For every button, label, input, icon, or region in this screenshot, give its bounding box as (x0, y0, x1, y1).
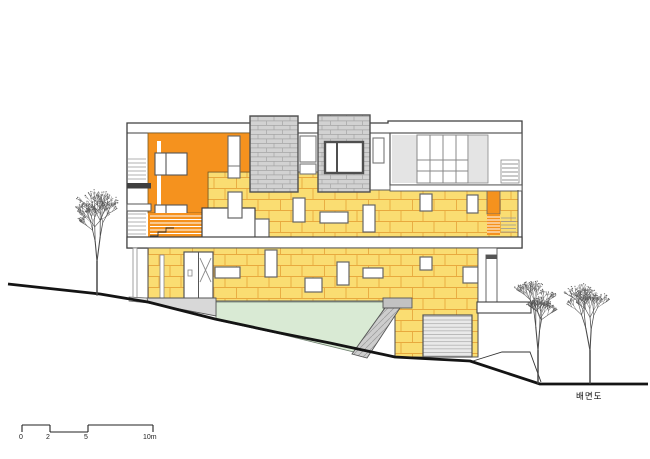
scale-bar (22, 425, 153, 432)
strip-window (228, 136, 240, 178)
window (373, 138, 384, 163)
entry-door (184, 252, 213, 300)
terrace-outline (473, 352, 541, 382)
canopy-slab (477, 302, 531, 313)
right-edge-wall (478, 248, 497, 302)
between-tower-windows (300, 136, 316, 174)
scale-tick-10m: 10m (143, 434, 157, 441)
scale-tick-2: 2 (46, 434, 50, 441)
drawing-title: 배면도 (576, 390, 602, 402)
retaining-wall-cap (383, 298, 412, 308)
balcony-slab-dark (127, 183, 151, 189)
building (127, 115, 541, 382)
exterior-stair-left (148, 213, 202, 237)
brick-tower-left (250, 116, 298, 192)
balcony-slab (127, 204, 151, 211)
tree-right-second (564, 283, 610, 383)
garage-door (423, 315, 472, 357)
scale-tick-0: 0 (19, 434, 23, 441)
glass-sill-band (390, 185, 522, 191)
roof-stair-railing (501, 160, 519, 183)
glass-curtain-wall (390, 133, 522, 191)
entry-platform (147, 298, 216, 316)
column-post (133, 248, 137, 298)
elevation-sheet: 0 2 5 10m 배면도 (0, 0, 650, 459)
tower-window (325, 142, 363, 173)
elevation-drawing (0, 0, 650, 459)
scale-tick-5: 5 (84, 434, 88, 441)
slot-window (160, 255, 164, 298)
floor-slab-band (127, 237, 522, 248)
tree-left (75, 189, 118, 295)
